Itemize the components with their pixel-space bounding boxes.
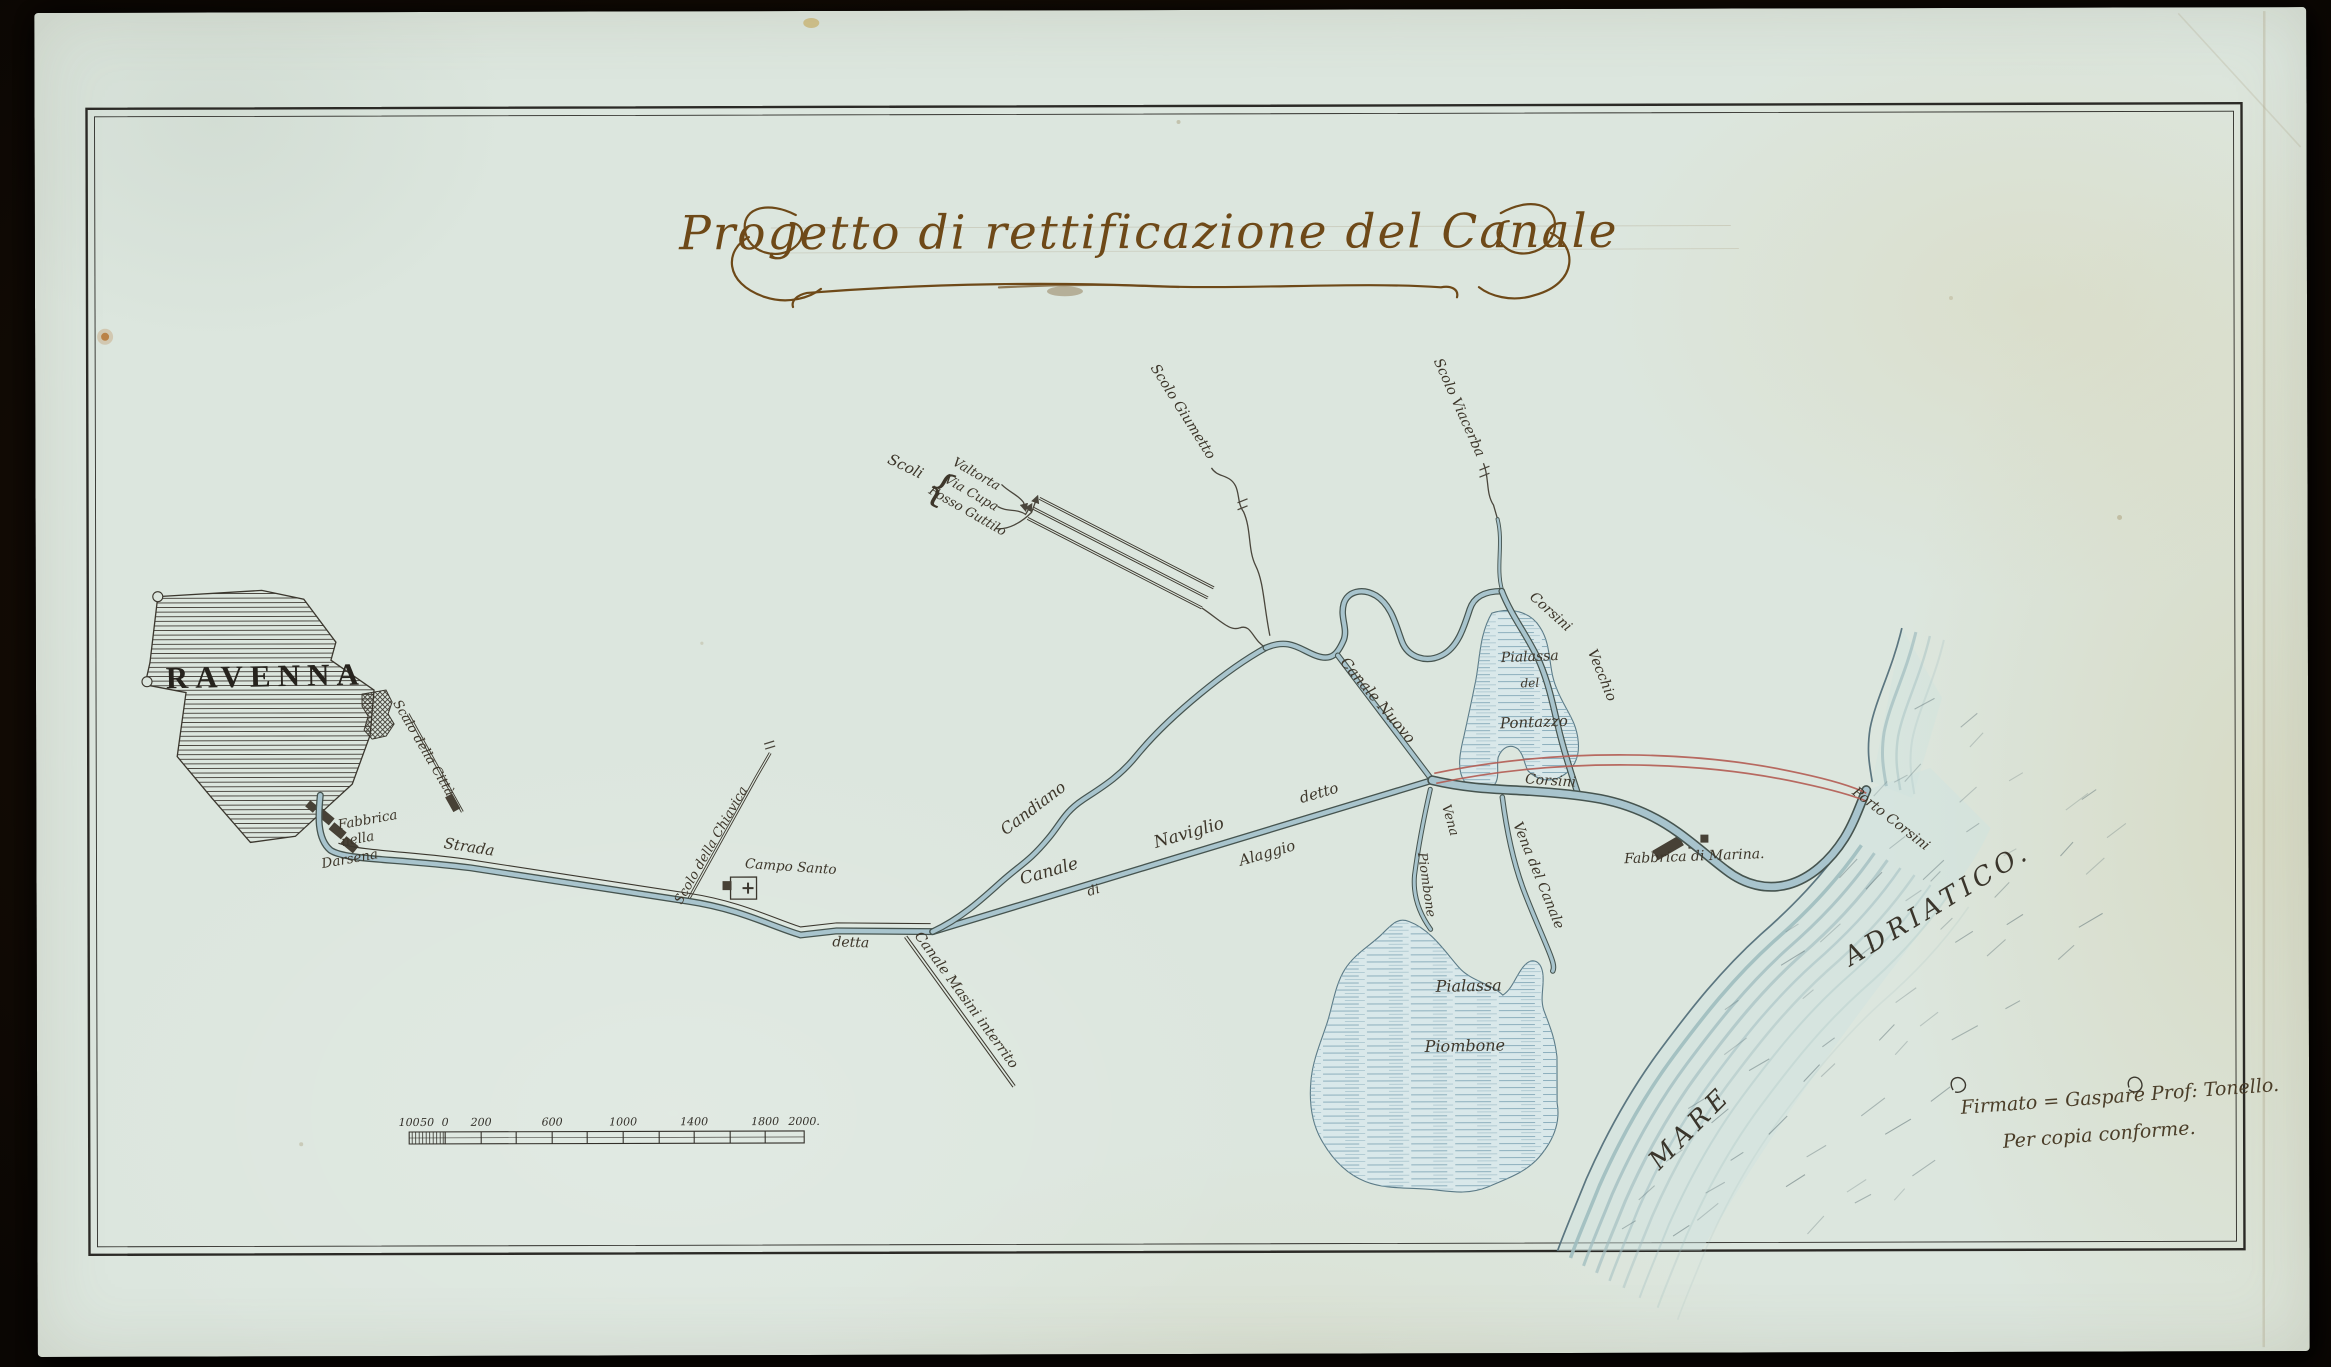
label-scolo-giumetto: Scolo Giumetto — [1147, 361, 1219, 462]
scale-label-2000: 2000. — [787, 1115, 820, 1128]
label-fabbrica-marina: Fabbrica di Marina. — [1623, 846, 1765, 867]
label-scalo-citta: Scalo della Città — [389, 697, 457, 798]
label-pontazzo-1: Pialassa — [1500, 648, 1559, 666]
label-piombone-1: Pialassa — [1434, 976, 1501, 996]
campo-santo-annex — [723, 881, 732, 890]
scale-label-50: 50 — [420, 1116, 434, 1129]
ravenna-city: RAVENNA — [142, 590, 395, 843]
signature-line-2: Per copia conforme. — [2001, 1117, 2196, 1153]
label-strada: Strada — [443, 834, 496, 860]
label-scolo-viacerba: Scolo Viacerba — [1430, 356, 1488, 459]
label-corsini: Corsini — [1525, 771, 1577, 790]
label-alaggio-word: Alaggio — [1235, 836, 1297, 870]
scoli-connector-1 — [1001, 484, 1025, 510]
label-canale-masini: Canale Masini interrito — [911, 929, 1021, 1072]
scoli-outlet-stream — [1202, 608, 1266, 648]
scoli-connector-2 — [998, 504, 1032, 514]
label-pontazzo-2: del — [1520, 676, 1539, 691]
fortress — [362, 690, 394, 739]
chiavica-feather — [764, 741, 775, 749]
scale-bar: 100 50 0 200 600 1000 1400 1800 2000. — [399, 1115, 820, 1144]
sea — [1556, 628, 2127, 1320]
label-vena-piombone-1: Vena — [1438, 803, 1461, 838]
signature-line-1: Firmato = Gaspare Prof: Tonello. — [1959, 1074, 2280, 1119]
label-scoli-header: Scoli — [885, 450, 927, 483]
scale-label-1800: 1800 — [751, 1115, 779, 1128]
canals — [318, 590, 1866, 974]
label-detta: detta — [832, 934, 869, 951]
title-underline — [793, 283, 1458, 307]
viacerba-stream — [1483, 463, 1497, 519]
towpath — [338, 842, 930, 929]
scale-label-100: 100 — [399, 1116, 420, 1129]
scale-label-200: 200 — [470, 1116, 492, 1129]
label-campo-santo: Campo Santo — [744, 856, 837, 878]
scale-label-1000: 1000 — [609, 1115, 637, 1128]
upper-streams — [995, 463, 1501, 648]
photo-stage: Progetto di rettificazione del Canale — [0, 0, 2331, 1367]
label-corsini-vecchio-2: Vecchio — [1584, 647, 1619, 704]
scale-label-600: 600 — [542, 1116, 563, 1129]
label-detto-word: detto — [1297, 779, 1340, 807]
piombone-hatch — [1310, 920, 1558, 1193]
city-name: RAVENNA — [165, 656, 366, 695]
map-title: Progetto di rettificazione del Canale — [678, 204, 1618, 261]
label-canale-nuovo: Canale Nuovo — [1337, 654, 1420, 747]
scale-label-1400: 1400 — [680, 1115, 708, 1128]
city-bastion-w — [142, 677, 152, 687]
label-piombone-2: Piombone — [1424, 1035, 1506, 1056]
signature-block: Firmato = Gaspare Prof: Tonello. Per cop… — [1951, 1074, 2280, 1153]
city-bastion-nw — [153, 592, 163, 602]
lagoons — [1309, 610, 1580, 1192]
scale-label-0: 0 — [442, 1116, 449, 1129]
giumetto-stream — [1211, 468, 1269, 636]
map-canvas: Progetto di rettificazione del Canale — [34, 7, 2310, 1357]
label-pontazzo-3: Pontazzo — [1499, 712, 1569, 733]
pontazzo-hatch — [1459, 610, 1578, 790]
map-paper: Progetto di rettificazione del Canale — [34, 7, 2310, 1357]
title-block: Progetto di rettificazione del Canale — [678, 204, 1739, 308]
viacerba-feather — [1479, 466, 1489, 477]
city-outline — [145, 590, 375, 843]
